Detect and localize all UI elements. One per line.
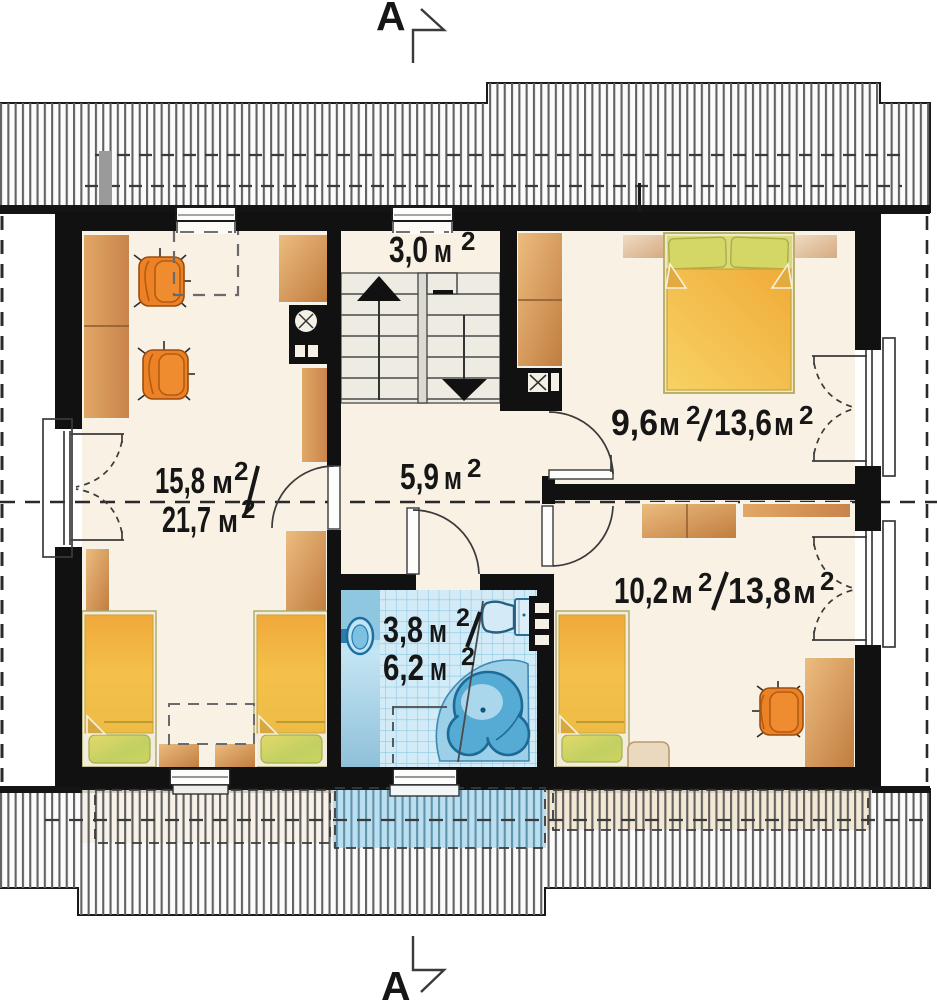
svg-text:м: м [218,503,238,539]
svg-text:2: 2 [461,643,475,671]
svg-text:A: A [376,0,406,39]
svg-text:13,8: 13,8 [728,570,791,611]
svg-text:2: 2 [461,226,475,256]
svg-text:м: м [429,613,447,649]
svg-text:15,8: 15,8 [155,460,205,501]
svg-text:3,0: 3,0 [389,229,428,270]
svg-text:A: A [381,963,411,1000]
svg-text:9,6: 9,6 [611,402,658,443]
svg-text:м: м [774,406,794,442]
svg-text:м: м [212,464,233,500]
svg-text:2: 2 [686,400,700,430]
svg-text:2: 2 [698,567,712,597]
svg-text:2: 2 [799,400,813,430]
svg-text:5,9: 5,9 [400,456,439,497]
svg-text:2: 2 [234,456,248,486]
svg-text:2: 2 [456,604,470,632]
svg-text:м: м [444,460,462,496]
svg-text:3,8: 3,8 [383,609,423,650]
svg-text:10,2: 10,2 [614,570,668,611]
svg-text:м: м [434,233,452,269]
svg-text:2: 2 [241,494,255,524]
svg-text:м: м [430,651,447,687]
svg-text:м: м [659,406,680,442]
svg-text:м: м [793,574,816,610]
svg-text:6,2: 6,2 [383,647,424,688]
svg-text:2: 2 [820,566,834,596]
svg-text:2: 2 [467,453,481,483]
svg-text:м: м [671,574,693,610]
svg-text:21,7: 21,7 [162,499,211,540]
svg-text:13,6: 13,6 [714,402,772,443]
